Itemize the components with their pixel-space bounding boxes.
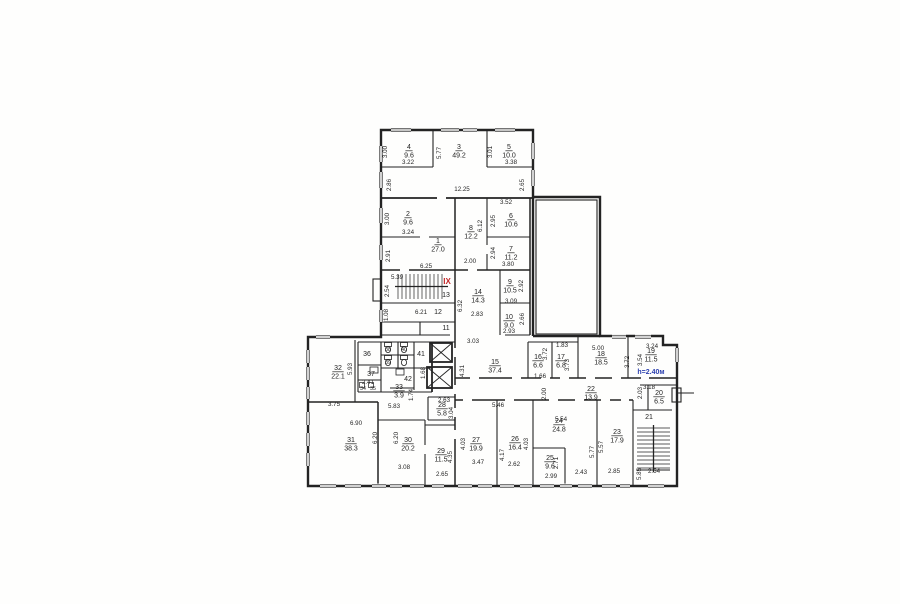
room-area: 12.2 <box>464 234 478 241</box>
window <box>500 484 514 489</box>
staircase <box>637 425 670 472</box>
room-label-4: 49.6 <box>404 144 414 160</box>
room-number: 11 <box>442 325 449 332</box>
room-label-1: 127.0 <box>431 238 445 254</box>
window <box>432 484 444 489</box>
room-area: 18.5 <box>594 360 608 367</box>
dimension-label: 2.92 <box>518 279 525 292</box>
room-label-8: 812.2 <box>464 225 478 241</box>
dimension-label: 2.63 <box>438 397 451 404</box>
dimension-label: 6.20 <box>393 431 400 444</box>
room-area: 38.3 <box>344 446 358 453</box>
dimension-label: 6.12 <box>477 219 484 232</box>
dimension-label: 1.08 <box>383 308 390 321</box>
window <box>306 412 311 425</box>
room-label-9: 910.5 <box>503 279 517 295</box>
dimension-label: 3.72 <box>624 355 631 368</box>
door-opening <box>454 385 457 394</box>
dimension-label: 5.54 <box>555 416 568 423</box>
room-area: 5.8 <box>437 411 447 418</box>
dimension-label: 3.04 <box>448 406 455 419</box>
room-label-36: 36 <box>363 351 371 358</box>
window <box>306 367 311 380</box>
elevators-layer <box>427 343 452 388</box>
door-opening <box>549 399 558 402</box>
door-opening <box>420 236 429 239</box>
room-area: 20.2 <box>401 446 415 453</box>
annotation-label: h=2.40м <box>637 369 664 376</box>
room-area: 16.4 <box>508 445 522 452</box>
dimension-label: 2.00 <box>464 258 477 265</box>
room-area: 19.9 <box>469 446 483 453</box>
door-opening <box>641 377 649 380</box>
room-area: 10.6 <box>504 222 518 229</box>
room-area: 6.6 <box>533 363 543 370</box>
room-area: 9.6 <box>403 220 413 227</box>
window <box>441 128 459 133</box>
dimension-label: 3.00 <box>382 145 389 158</box>
room-number: 40 <box>401 347 407 353</box>
dimension-label: 3.72 <box>542 347 549 360</box>
room-label-13: 13 <box>442 292 450 299</box>
room-number: 32 <box>334 365 342 372</box>
room-number: 6 <box>509 213 513 220</box>
room-label-18: 1818.5 <box>594 351 608 367</box>
room-number: 22 <box>587 386 595 393</box>
dimension-label: 5.57 <box>598 440 605 453</box>
room-label-27: 2719.9 <box>469 437 483 453</box>
dimension-label: 2.85 <box>608 468 621 475</box>
room-number: 8 <box>469 225 473 232</box>
dimension-label: 4.17 <box>499 448 506 461</box>
window <box>320 484 336 489</box>
dimension-label: 3.08 <box>398 464 411 471</box>
window <box>675 348 680 362</box>
room-area: 6.5 <box>654 399 664 406</box>
room-label-15: 1537.4 <box>488 359 502 375</box>
room-number: 29 <box>437 448 445 455</box>
room-area: 13.9 <box>584 395 598 402</box>
exterior-wall <box>308 130 677 486</box>
plan-feature-rect <box>536 200 597 334</box>
window <box>495 128 515 133</box>
dimension-label: 3.80 <box>502 261 515 268</box>
dimension-label: 2.43 <box>575 469 588 476</box>
dimension-label: 3.54 <box>637 353 644 366</box>
room-area: 3.9 <box>394 393 404 400</box>
room-number: 2 <box>406 211 410 218</box>
window <box>372 484 386 489</box>
dimension-label: 3.38 <box>505 159 518 166</box>
dimension-label: 5.77 <box>589 445 596 458</box>
room-label-29: 2911.5 <box>434 448 447 464</box>
dimension-label: 3.03 <box>467 338 480 345</box>
dimension-label: 6.90 <box>350 420 363 427</box>
room-number: 12 <box>434 309 442 316</box>
door-opening <box>586 377 595 380</box>
dimension-label: 3.24 <box>402 229 415 236</box>
room-area: 49.2 <box>452 153 466 160</box>
room-label-30: 3020.2 <box>401 437 415 453</box>
door-opening <box>400 269 409 272</box>
room-area: 14.3 <box>471 298 485 305</box>
elevator-shaft-icon <box>427 367 452 388</box>
dimension-label: 2.94 <box>490 246 497 259</box>
room-label-41: 41 <box>417 351 425 358</box>
door-opening <box>486 245 489 254</box>
room-number: 13 <box>442 292 450 299</box>
room-label-34: 34 <box>360 386 366 392</box>
dimension-label: 2.54 <box>648 468 661 475</box>
dimension-label: 5.46 <box>492 402 505 409</box>
dimension-label: 4.31 <box>459 364 466 377</box>
dimension-label: 2.95 <box>490 214 497 227</box>
window <box>578 484 592 489</box>
dimension-label: 3.00 <box>384 212 391 225</box>
window <box>379 245 384 260</box>
room-number: 36 <box>363 351 371 358</box>
door-opening <box>463 399 472 402</box>
room-label-33: 333.9 <box>393 384 404 400</box>
room-label-19: 1911.5 <box>644 348 657 364</box>
room-number: 15 <box>491 359 499 366</box>
dimension-label: 5.83 <box>388 403 401 410</box>
room-label-38: 38 <box>385 347 391 353</box>
room-number: 7 <box>509 246 513 253</box>
room-label-37: 37 <box>367 371 375 378</box>
room-number: 9 <box>508 279 512 286</box>
window <box>316 335 330 340</box>
window <box>612 335 626 340</box>
dimension-label: 1.74 <box>408 388 415 401</box>
room-number: 38 <box>385 347 391 353</box>
dimension-label: 5.39 <box>391 274 404 281</box>
dimension-label: 3.75 <box>328 401 341 408</box>
window <box>390 484 402 489</box>
room-number: 3 <box>457 144 461 151</box>
dimension-label: 3.01 <box>487 145 494 158</box>
window <box>306 350 311 363</box>
door-opening <box>575 399 584 402</box>
window <box>306 433 311 446</box>
door-opening <box>560 377 569 380</box>
toilet-icon <box>401 356 408 366</box>
window <box>520 484 532 489</box>
room-number: 1 <box>436 238 440 245</box>
window <box>478 484 492 489</box>
room-label-6: 610.6 <box>504 213 518 229</box>
room-number: 30 <box>404 437 412 444</box>
room-label-21: 21 <box>645 414 653 421</box>
dimension-label: 1.68 <box>420 366 427 379</box>
room-area: 22.1 <box>331 374 345 381</box>
dimension-label: 1.66 <box>534 373 547 380</box>
room-area: 17.9 <box>610 438 624 445</box>
room-label-7: 711.2 <box>504 246 517 262</box>
dimension-label: 2.54 <box>384 284 391 297</box>
room-area: 10.5 <box>503 288 517 295</box>
dimension-label: 3.22 <box>402 159 415 166</box>
room-label-39: 39 <box>385 360 391 366</box>
room-number: 21 <box>645 414 653 421</box>
room-number: 18 <box>597 351 605 358</box>
dimension-label: 1.83 <box>556 342 569 349</box>
door-opening <box>601 399 610 402</box>
door-opening <box>612 377 621 380</box>
dimension-label: 4.03 <box>523 437 530 450</box>
window <box>345 484 361 489</box>
room-area: 11.5 <box>644 357 657 364</box>
window <box>379 172 384 188</box>
window <box>391 128 411 133</box>
window <box>635 335 651 340</box>
room-number: 5 <box>507 144 511 151</box>
dimension-label: 4.03 <box>460 437 467 450</box>
room-label-26: 2616.4 <box>508 436 522 452</box>
room-number: 26 <box>511 436 519 443</box>
room-number: 34 <box>360 386 366 392</box>
dimension-label: 2.00 <box>541 387 548 400</box>
dimension-label: 2.83 <box>471 311 484 318</box>
dimension-label: 6.20 <box>372 431 379 444</box>
door-opening <box>437 196 446 199</box>
door-opening <box>424 445 427 454</box>
room-area: 11.5 <box>434 457 447 464</box>
dimension-label: 3.18 <box>643 384 656 391</box>
room-label-28: 285.8 <box>436 402 447 418</box>
room-area: 27.0 <box>431 247 445 254</box>
dimension-label: 2.41 <box>362 379 375 386</box>
dimension-label: 3.52 <box>500 199 513 206</box>
floor-plan-page: 127.029.6349.249.6510.0610.6711.2812.291… <box>0 0 900 604</box>
door-opening <box>505 399 514 402</box>
room-label-20: 206.5 <box>653 390 664 406</box>
dimension-label: 12.25 <box>454 186 470 193</box>
dimension-label: 5.77 <box>436 146 443 159</box>
room-number: 4 <box>407 144 411 151</box>
window <box>531 170 536 186</box>
windows-layer <box>306 128 680 489</box>
window <box>458 484 472 489</box>
dimension-label: 3.47 <box>472 459 485 466</box>
dimension-label: 3.73 <box>564 358 571 371</box>
window <box>379 208 384 223</box>
door-opening <box>454 348 457 357</box>
room-label-31: 3138.3 <box>344 437 358 453</box>
door-opening <box>470 377 479 380</box>
room-label-23: 2317.9 <box>610 429 624 445</box>
door-opening <box>454 430 457 439</box>
room-label-2: 29.6 <box>403 211 413 227</box>
room-label-14: 1414.3 <box>471 289 485 305</box>
dimension-label: 5.85 <box>636 467 643 480</box>
dimension-label: 4.35 <box>447 450 454 463</box>
dimension-label: 2.65 <box>436 471 449 478</box>
room-number: 16 <box>534 354 542 361</box>
room-number: 39 <box>385 360 391 366</box>
dimension-label: 2.99 <box>545 473 558 480</box>
room-label-5: 510.0 <box>502 144 516 160</box>
dimension-label: 2.66 <box>519 312 526 325</box>
window <box>648 484 664 489</box>
room-number: 27 <box>472 437 480 444</box>
room-area: 37.4 <box>488 368 502 375</box>
dimension-label: 3.24 <box>646 343 659 350</box>
room-label-42: 42 <box>404 376 412 383</box>
room-number: 10 <box>505 314 513 321</box>
door-opening <box>468 269 477 272</box>
room-number: 33 <box>395 384 403 391</box>
room-label-32: 3222.1 <box>331 365 345 381</box>
dimension-label: 2.62 <box>508 461 521 468</box>
door-opening <box>621 399 629 402</box>
dimension-label: 2.93 <box>503 328 516 335</box>
window <box>410 484 424 489</box>
room-area: 24.8 <box>552 427 566 434</box>
room-label-11: 11 <box>442 325 449 332</box>
dimension-label: 3.09 <box>505 298 518 305</box>
dimension-label: 5.00 <box>592 345 605 352</box>
room-label-40: 40 <box>401 347 407 353</box>
dimension-label: 6.25 <box>420 263 433 270</box>
window <box>602 484 616 489</box>
dimension-label: 6.21 <box>415 309 428 316</box>
window <box>463 128 477 133</box>
room-number: 35 <box>370 386 376 392</box>
elevator-shaft-icon <box>430 343 452 362</box>
door-opening <box>512 377 521 380</box>
annotation-label: IX <box>443 277 451 286</box>
window <box>306 453 311 466</box>
room-number: 42 <box>404 376 412 383</box>
walls-layer <box>308 130 694 486</box>
dimension-label: 6.32 <box>457 299 464 312</box>
window <box>540 484 554 489</box>
room-number: 41 <box>417 351 425 358</box>
room-number: 23 <box>613 429 621 436</box>
window <box>531 143 536 159</box>
room-label-35: 35 <box>370 386 376 392</box>
room-number: 20 <box>655 390 663 397</box>
sink-icon <box>396 369 404 375</box>
dimension-label: 2.91 <box>385 249 392 262</box>
room-number: 31 <box>347 437 355 444</box>
window <box>560 484 572 489</box>
dimension-label: 2.71 <box>553 456 560 469</box>
window <box>620 484 630 489</box>
room-number: 14 <box>474 289 482 296</box>
dimension-label: 2.65 <box>519 178 526 191</box>
room-label-12: 12 <box>434 309 442 316</box>
floor-plan-drawing: 127.029.6349.249.6510.0610.6711.2812.291… <box>0 0 900 604</box>
room-label-3: 349.2 <box>452 144 466 160</box>
room-label-22: 2213.9 <box>584 386 598 402</box>
room-number: 37 <box>367 371 375 378</box>
dimension-label: 2.86 <box>386 178 393 191</box>
window <box>306 387 311 399</box>
dimension-label: 5.93 <box>347 362 354 375</box>
